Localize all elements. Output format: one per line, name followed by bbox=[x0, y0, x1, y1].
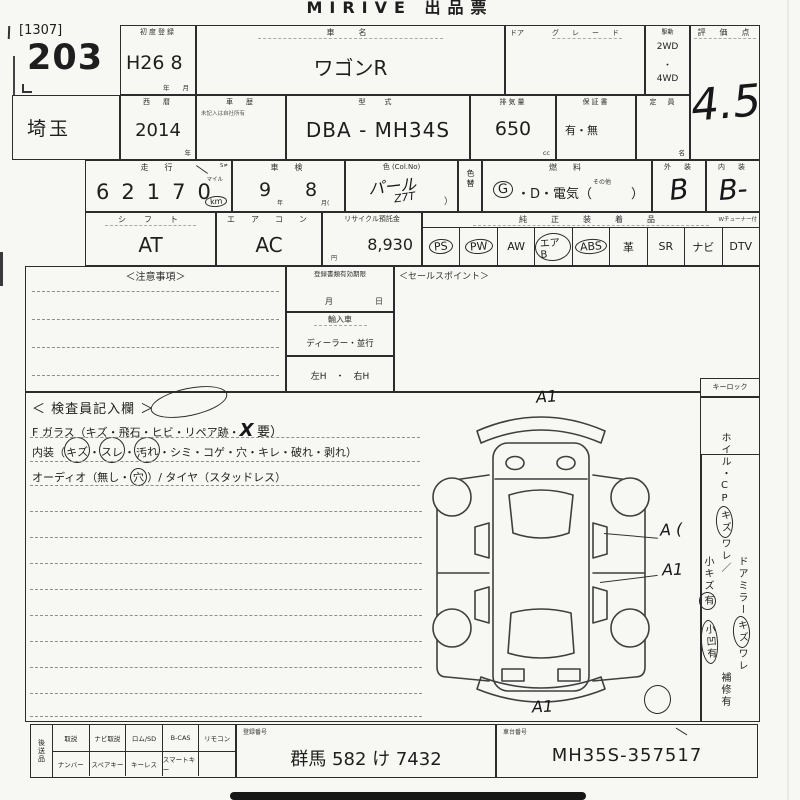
door-grade-box: ドア グ レ ー ド bbox=[505, 25, 645, 95]
rear-left-wheel bbox=[433, 609, 471, 647]
steering-box: 左H ・ 右H bbox=[286, 356, 394, 392]
capacity-label: 定 員 bbox=[637, 97, 689, 107]
equipment-cell-pw: PW bbox=[459, 228, 496, 265]
inspection-month-unit: 月( bbox=[321, 198, 329, 207]
front-bumper bbox=[477, 417, 605, 443]
model-year-label: 西 暦 bbox=[121, 97, 195, 107]
equipment-dtv: DTV bbox=[729, 240, 752, 253]
displacement-unit: cc bbox=[543, 149, 550, 157]
first-reg-year-unit: 年 bbox=[163, 82, 170, 92]
color-code: Z7T bbox=[393, 190, 416, 206]
warranty-label: 保証書 bbox=[557, 97, 635, 107]
fuel-options: ・D・電気（ bbox=[517, 183, 592, 202]
lot-prefix: [1307] bbox=[19, 23, 62, 38]
equipment-note: Wチューナー付 bbox=[719, 215, 757, 223]
shift-label: シ フ ト bbox=[105, 214, 195, 226]
interior-grade-box: 内 装 B- bbox=[706, 160, 760, 212]
windshield bbox=[509, 490, 573, 538]
inspection-box: 車 検 9 年 8 月( bbox=[232, 160, 345, 212]
later-items-label-cell: 後送品 bbox=[31, 725, 53, 777]
damage-mark-bottom: A1 bbox=[532, 696, 554, 716]
steering-label: 左H ・ 右H bbox=[287, 369, 393, 382]
score-label: 評 価 点 bbox=[694, 27, 755, 39]
displacement-value: 650 bbox=[471, 118, 555, 140]
mirror-rest: ワレ bbox=[736, 648, 747, 672]
small-scratch-label: 小キズ bbox=[702, 556, 713, 592]
later-items-label: 後送品 bbox=[37, 739, 47, 763]
interior-post: ・シミ・コゲ・穴・キレ・破れ・剥れ） bbox=[159, 446, 357, 459]
km-unit-circled: km bbox=[204, 195, 227, 208]
color-label: 色 (Col.No) bbox=[346, 162, 457, 172]
inspection-label: 車 検 bbox=[233, 162, 344, 173]
small-scratch-ari-circled: 有 bbox=[698, 591, 716, 610]
equipment-cell-dtv: DTV bbox=[722, 228, 759, 265]
registration-number-value: 群馬 582 け 7432 bbox=[237, 745, 495, 771]
equipment-aw: AW bbox=[507, 240, 525, 253]
model-code-value: DBA - MH34S bbox=[287, 118, 469, 142]
inspector-line-interior: 内装（キズ・スレ・汚れ・シミ・コゲ・穴・キレ・破れ・剥れ） bbox=[32, 444, 357, 461]
equipment-leather: 革 bbox=[623, 239, 634, 255]
drive-label: 駆動 bbox=[646, 27, 689, 36]
dealer-parallel-label: ディーラー・並行 bbox=[287, 337, 393, 349]
drive-2wd: 2WD bbox=[646, 42, 689, 52]
sidebar-dent-note: 小凹有 bbox=[701, 620, 718, 664]
first-registration-box: 初度登録 H26 8 年 月 bbox=[120, 25, 196, 95]
aircon-label: エ ア コ ン bbox=[217, 214, 321, 225]
mileage-box: 走 行 S≠ 62170 マイル km bbox=[85, 160, 232, 212]
history-label: 車 歴 bbox=[197, 97, 285, 107]
model-year-value: 2014 bbox=[121, 120, 195, 141]
damage-mark-right-1: A ( bbox=[660, 519, 683, 539]
equipment-cell-navi: ナビ bbox=[684, 228, 721, 265]
first-registration-value: H26 8 bbox=[126, 52, 183, 74]
mileage-meter-note: S≠ bbox=[220, 163, 228, 169]
later-items-row-1: 取説 ナビ取説 ロム/SD B-CAS リモコン bbox=[53, 725, 235, 751]
chassis-number-value: MH35S-357517 bbox=[497, 745, 757, 766]
car-damage-diagram bbox=[425, 385, 705, 720]
shift-box: シ フ ト AT bbox=[85, 212, 216, 266]
color-box: 色 (Col.No) パール Z7T ） bbox=[345, 160, 458, 212]
score-box: 評 価 点 4.5 bbox=[690, 25, 760, 160]
small-dent-circled: 小凹有 bbox=[699, 619, 719, 664]
lot-vline bbox=[13, 56, 15, 96]
auction-sheet: { "title": "MIRIVE 出品票", "lot": { "prefi… bbox=[0, 0, 800, 800]
chassis-number-label: 車台番号 bbox=[503, 727, 527, 736]
later-items-row-2: ナンバー スペアキー キーレス スマートキー bbox=[53, 751, 235, 776]
capacity-box: 定 員 名 bbox=[636, 95, 690, 160]
equipment-cell-abs: ABS bbox=[572, 228, 609, 265]
inspection-year: 9 bbox=[259, 179, 271, 201]
lot-number: 203 bbox=[27, 38, 103, 78]
item-navi-manual: ナビ取説 bbox=[94, 733, 120, 743]
audio-post: ）/ タイヤ（スタッドレス） bbox=[147, 471, 286, 484]
fuel-box: 燃 料 G ・D・電気（ その他 ） bbox=[482, 160, 652, 212]
car-name-label: 車 名 bbox=[258, 27, 442, 39]
recycle-fee-label: リサイクル預託金 bbox=[323, 214, 421, 224]
model-code-box: 型 式 DBA - MH34S bbox=[286, 95, 470, 160]
inspection-year-unit: 年 bbox=[277, 198, 283, 207]
shift-value: AT bbox=[86, 233, 215, 257]
equipment-cell-sr: SR bbox=[647, 228, 684, 265]
prefecture-value: 埼玉 bbox=[27, 114, 71, 141]
item-smart-key: スマートキー bbox=[163, 754, 199, 774]
warranty-value: 有・無 bbox=[565, 122, 598, 138]
sidebar-wheel-note: ホイル・CPキズワレ／ bbox=[716, 432, 733, 574]
mile-unit: マイル bbox=[206, 175, 223, 183]
fuel-close-paren: ） bbox=[631, 183, 644, 202]
equipment-cell-ps: PS bbox=[423, 228, 459, 265]
first-registration-label: 初度登録 bbox=[121, 27, 195, 37]
damage-mark-right-2: A1 bbox=[662, 560, 684, 580]
caution-label: ＜注意事項＞ bbox=[26, 268, 285, 283]
audio-pre: オーディオ（無し・ bbox=[32, 471, 130, 484]
recycle-fee-unit: 円 bbox=[331, 253, 337, 262]
item-remote: リモコン bbox=[204, 733, 230, 743]
equipment-navi: ナビ bbox=[692, 239, 714, 255]
repair-label: 補修有 bbox=[719, 672, 730, 708]
exterior-grade-box: 外 装 B bbox=[652, 160, 706, 212]
hand-tick bbox=[676, 728, 688, 736]
wheel-rest: ワレ／ bbox=[719, 538, 730, 574]
scan-edge-bar bbox=[230, 792, 586, 800]
inspection-month: 8 bbox=[305, 179, 317, 201]
caution-box: ＜注意事項＞ bbox=[25, 266, 286, 392]
mirror-kizu-circled: キズ bbox=[732, 615, 751, 648]
recycle-fee-value: 8,930 bbox=[367, 235, 413, 254]
equipment-box: 純 正 装 着 品 Wチューナー付 PS PW AW エアB ABS 革 SR … bbox=[422, 212, 760, 266]
history-note: 未記入は自社所有 bbox=[201, 109, 245, 117]
sales-point-label: ＜セールスポイント＞ bbox=[399, 269, 489, 282]
drive-box: 駆動 2WD ・ 4WD bbox=[645, 25, 690, 95]
front-right-wheel bbox=[611, 478, 649, 516]
lot-bracket bbox=[22, 84, 32, 93]
car-body bbox=[493, 443, 589, 691]
equipment-cell-leather: 革 bbox=[609, 228, 646, 265]
fuel-label: 燃 料 bbox=[483, 162, 651, 173]
later-items-table: 後送品 取説 ナビ取説 ロム/SD B-CAS リモコン ナンバー スペアキー … bbox=[30, 724, 236, 778]
scan-right-line bbox=[787, 0, 789, 800]
equipment-pw: PW bbox=[464, 238, 492, 255]
equipment-sr: SR bbox=[659, 240, 674, 253]
sidebar-mirror-note: ドアミラーキズワレ bbox=[733, 556, 750, 672]
equipment-airbag: エアB bbox=[534, 231, 572, 261]
prefecture-box: 埼玉 bbox=[12, 95, 120, 160]
warranty-box: 保証書 有・無 bbox=[556, 95, 636, 160]
interior-sure-circled: スレ bbox=[98, 436, 125, 463]
tick-mark bbox=[8, 26, 10, 39]
sidebar-repair-note: 補修有 bbox=[717, 672, 732, 708]
sheet-title: MIRIVE 出品票 bbox=[240, 0, 560, 18]
item-spare-key: スペアキー bbox=[91, 759, 123, 769]
equipment-cell-airbag: エアB bbox=[534, 228, 571, 265]
color-change-label: 色替 bbox=[465, 169, 476, 189]
color-change-box: 色替 bbox=[458, 160, 482, 212]
interior-label: 内 装 bbox=[707, 162, 759, 172]
rear-right-wheel bbox=[611, 609, 649, 647]
wheel-label: ホイル・CP bbox=[719, 432, 730, 506]
history-box: 車 歴 未記入は自社所有 bbox=[196, 95, 286, 160]
model-code-label: 型 式 bbox=[287, 97, 469, 107]
inspector-line-audio: オーディオ（無し・穴）/ タイヤ（スタッドレス） bbox=[32, 468, 286, 486]
capacity-unit: 名 bbox=[679, 147, 686, 157]
import-label: 輸入車 bbox=[314, 314, 367, 326]
mirror-label: ドアミラー bbox=[736, 556, 747, 616]
mileage-label: 走 行 bbox=[86, 162, 231, 173]
aircon-box: エ ア コ ン AC bbox=[216, 212, 322, 266]
item-manual: 取説 bbox=[64, 733, 77, 743]
wheel-kizu-circled: キズ bbox=[715, 505, 734, 538]
displacement-label: 排気量 bbox=[471, 97, 555, 107]
interior-value: B- bbox=[706, 171, 760, 208]
aircon-value: AC bbox=[217, 233, 321, 257]
interior-pre: 内装（ bbox=[32, 446, 65, 459]
score-value: 4.5 bbox=[689, 75, 761, 132]
front-left-wheel bbox=[433, 478, 471, 516]
fuel-gasoline-circled: G bbox=[492, 180, 513, 198]
car-name-value: ワゴンR bbox=[197, 52, 504, 81]
equipment-cell-aw: AW bbox=[497, 228, 534, 265]
drive-4wd: 4WD bbox=[646, 74, 689, 84]
sidebar-small-scratch: 小キズ有 bbox=[699, 556, 716, 610]
color-paren: ） bbox=[444, 194, 453, 207]
item-rom-sd: ロム/SD bbox=[132, 733, 156, 743]
item-keyless: キーレス bbox=[131, 759, 157, 769]
exterior-value: B bbox=[651, 170, 706, 208]
rear-window bbox=[508, 609, 574, 658]
registration-number-box: 登録番号 群馬 582 け 7432 bbox=[236, 724, 496, 778]
car-name-box: 車 名 ワゴンR bbox=[196, 25, 505, 95]
grade-label: グ レ ー ド bbox=[552, 28, 622, 39]
equipment-abs: ABS bbox=[575, 238, 608, 255]
mileage-value: 62170 bbox=[96, 180, 223, 204]
sales-point-box: ＜セールスポイント＞ bbox=[394, 266, 760, 392]
fuel-other-label: その他 bbox=[593, 177, 611, 186]
model-year-box: 西 暦 2014 年 bbox=[120, 95, 196, 160]
damage-mark-top: A1 bbox=[535, 386, 557, 406]
equipment-label: 純 正 装 着 品 bbox=[473, 214, 708, 226]
displacement-box: 排気量 650 cc bbox=[470, 95, 556, 160]
keylock-box: キーロック bbox=[700, 378, 760, 397]
first-reg-month-unit: 月 bbox=[183, 82, 190, 92]
docs-month-label: 月 bbox=[325, 296, 333, 307]
interior-kizu-circled: キズ bbox=[63, 436, 90, 463]
door-label: ドア bbox=[510, 28, 524, 38]
model-year-unit: 年 bbox=[185, 147, 192, 157]
docs-day-label: 日 bbox=[375, 296, 383, 307]
docs-expiry-box: 登録書類有効期限 月 日 bbox=[286, 266, 394, 312]
chassis-number-box: 車台番号 MH35S-357517 bbox=[496, 724, 758, 778]
registration-number-label: 登録番号 bbox=[243, 727, 267, 736]
recycle-fee-box: リサイクル預託金 8,930 円 bbox=[322, 212, 422, 266]
keylock-label: キーロック bbox=[701, 382, 759, 392]
scan-left-mark bbox=[0, 252, 3, 286]
equipment-ps: PS bbox=[429, 238, 454, 255]
docs-expiry-label: 登録書類有効期限 bbox=[287, 268, 393, 278]
equipment-cells: PS PW AW エアB ABS 革 SR ナビ DTV bbox=[423, 227, 759, 265]
import-box: 輸入車 ディーラー・並行 bbox=[286, 312, 394, 356]
audio-hole-circled: 穴 bbox=[130, 467, 148, 486]
item-bcas: B-CAS bbox=[171, 734, 191, 742]
inspector-title: ＜ 検査員記入欄 ＞ bbox=[32, 398, 154, 417]
drive-dot: ・ bbox=[646, 58, 689, 71]
item-number-plate: ナンバー bbox=[58, 759, 84, 769]
